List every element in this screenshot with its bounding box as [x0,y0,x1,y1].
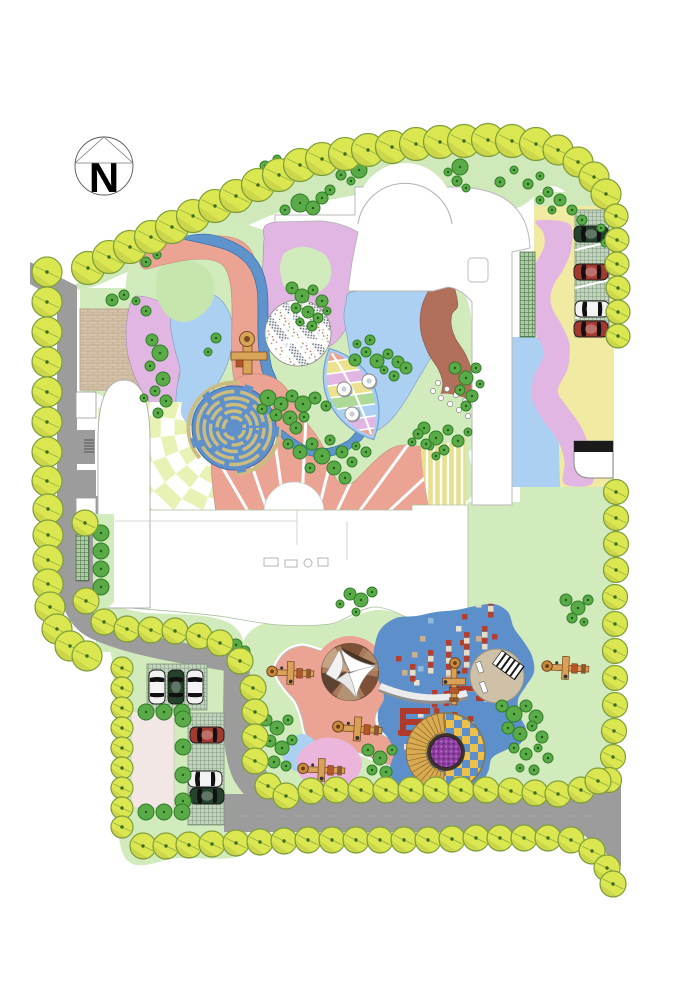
svg-text:N: N [89,154,119,201]
